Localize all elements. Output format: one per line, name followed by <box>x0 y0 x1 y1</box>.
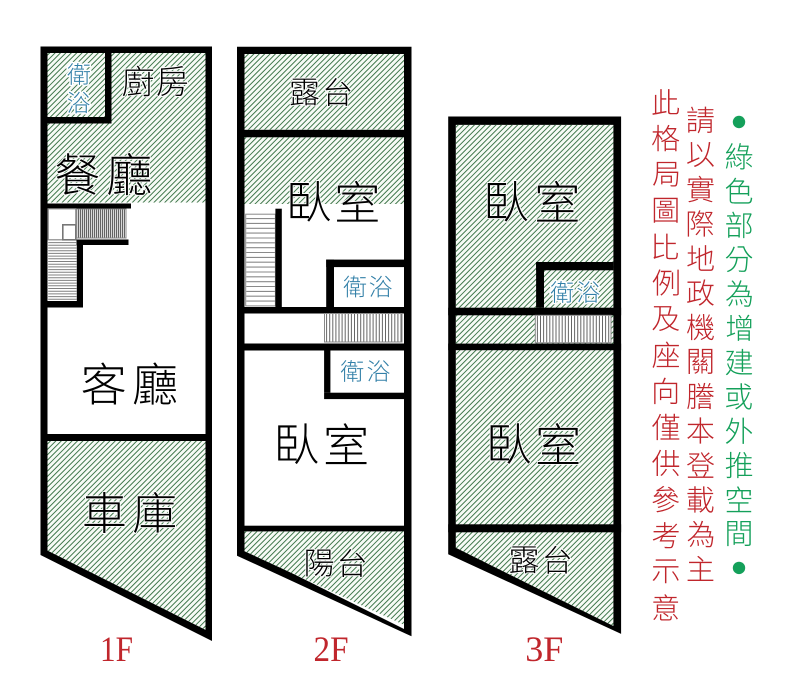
svg-text:3F: 3F <box>525 629 563 669</box>
svg-text:1F: 1F <box>100 629 133 669</box>
svg-text:2F: 2F <box>314 629 349 669</box>
